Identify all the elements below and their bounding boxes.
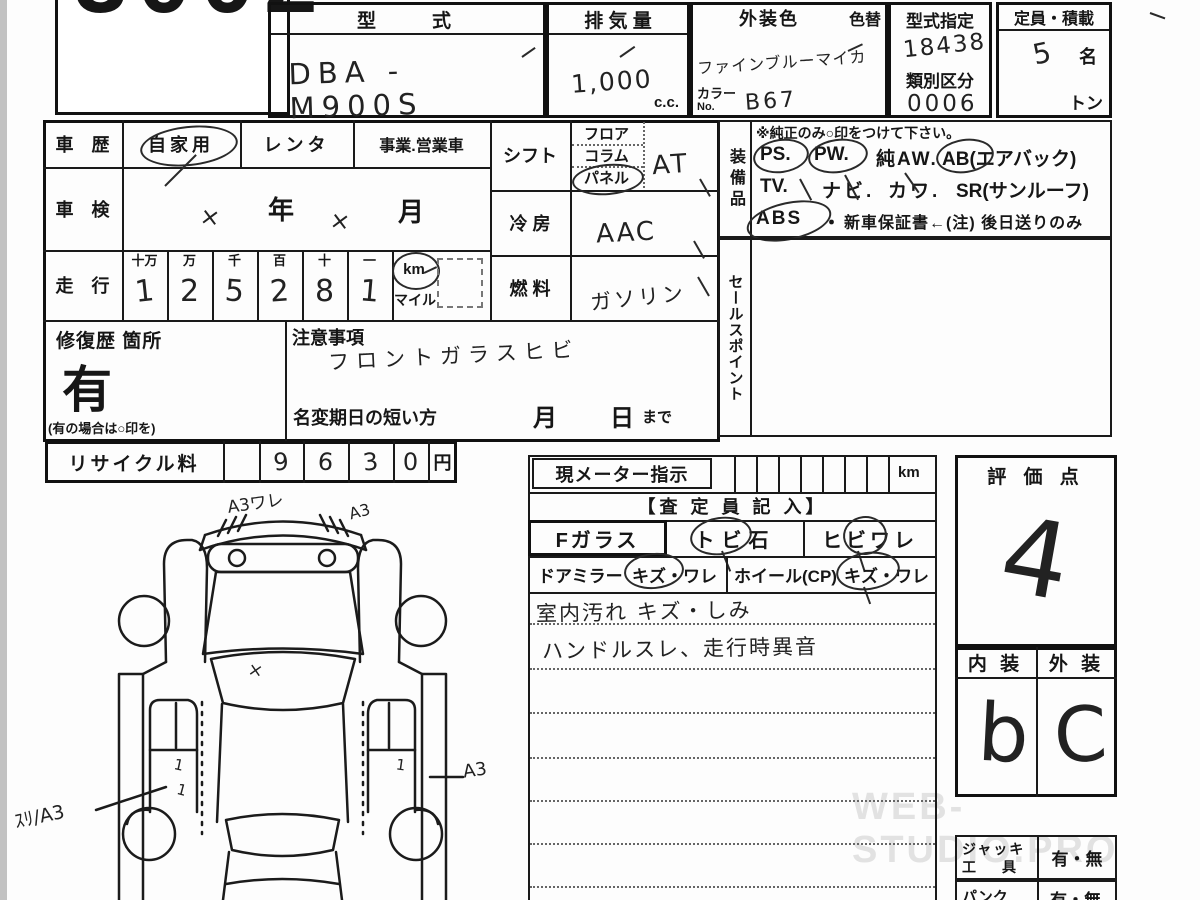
history-business: 事業.営業車 — [353, 120, 490, 167]
meter-label: 現メーター指示 — [532, 458, 712, 489]
mileage-label: 走 行 — [43, 250, 122, 320]
windshield — [211, 652, 355, 710]
assessor-note-2: ハンドルスレ、走行時異音 — [542, 631, 818, 666]
recycle-unit: 円 — [428, 441, 457, 483]
grid-line — [888, 455, 890, 492]
capacity-cell: 定員・積載 5 名 トン — [996, 2, 1112, 118]
lot-number: 3002 — [74, 0, 274, 35]
mileage-d10k: 2 — [167, 266, 212, 316]
grid-line — [844, 455, 846, 492]
car-damage-diagram — [30, 488, 510, 900]
equipment-leather: カワ. — [888, 176, 940, 203]
score-value: 4 — [992, 493, 1079, 625]
jack-value: 有・無 — [1037, 835, 1117, 880]
inspection-year-mark: × — [198, 202, 222, 233]
grid-line — [726, 556, 728, 592]
left-door — [150, 700, 197, 812]
ruled-line — [530, 800, 935, 802]
ruled-line — [530, 757, 935, 759]
capacity-label: 定員・積載 — [999, 5, 1109, 31]
roof-sides — [217, 704, 348, 822]
recycle-d3: 3 — [346, 441, 395, 483]
displacement-unit: c.c. — [654, 94, 679, 111]
shift-floor: フロア — [570, 122, 643, 144]
jack-label-1: ジャッキ — [962, 839, 1025, 859]
displacement-value: 1,000 — [570, 64, 653, 99]
rename-label: 名変期日の短い方 — [293, 404, 437, 430]
exterior-grade: C — [1052, 689, 1110, 781]
history-rental: レンタ — [240, 120, 353, 167]
inspection-month: 月 — [398, 192, 424, 229]
recycle-d4: 0 — [393, 443, 428, 481]
right-door-window — [368, 703, 415, 750]
mileage-d100k: 1 — [120, 264, 170, 318]
model-code-label: 型 式 — [271, 5, 543, 35]
sales-point-strip: セールスポイント — [718, 238, 752, 437]
exterior-label: 外 装 — [1036, 649, 1117, 675]
grid-line — [756, 455, 758, 492]
score-label: 評 価 点 — [958, 462, 1114, 488]
grid-line — [800, 455, 802, 492]
grid-line — [285, 320, 287, 442]
lot-number-box: 3002 — [55, 0, 290, 115]
sales-point-label: セールスポイント — [725, 274, 746, 402]
capacity-value: 5 — [1030, 36, 1054, 72]
trunk-lid — [226, 879, 339, 884]
fuel-label: 燃 料 — [490, 255, 570, 320]
washer-nozzle — [229, 550, 245, 566]
puncture-label: パンク — [962, 886, 1008, 900]
wheel-label: ホイール(CP) — [734, 562, 837, 587]
hood — [203, 572, 363, 654]
displacement-label: 排 気 量 — [549, 5, 687, 35]
meter-unit: km — [898, 464, 920, 481]
grid-line — [955, 677, 1117, 679]
front-glass-label: Fガラス — [528, 520, 667, 556]
displacement-cell: 排 気 量 1,000 c.c. — [546, 2, 690, 118]
right-rocker-panel — [422, 674, 446, 900]
rear-window — [226, 814, 339, 856]
model-code-value: DBA - M900S — [288, 49, 544, 126]
grid-line — [822, 455, 824, 492]
mileage-d1k: 5 — [210, 264, 258, 317]
grid-line — [43, 320, 720, 322]
mileage-d10: 8 — [302, 266, 347, 316]
ruled-line — [530, 623, 935, 625]
recycle-d1: 9 — [257, 441, 304, 483]
inspection-year: 年 — [268, 190, 294, 227]
rename-month: 月 — [533, 398, 557, 433]
inspection-month-mark: × — [328, 206, 352, 237]
exterior-color-label: 外装色 — [693, 5, 845, 31]
grid-line — [223, 441, 225, 483]
score-box: 評 価 点 4 — [955, 455, 1117, 647]
ruled-line — [530, 712, 935, 714]
equipment-aw: 純AW. — [876, 144, 938, 171]
left-front-fender — [164, 540, 207, 662]
puncture-value: 有・無 — [1050, 886, 1101, 900]
right-door — [368, 700, 415, 812]
ruled-line — [530, 843, 935, 845]
mileage-d1: 1 — [345, 264, 394, 318]
scan-edge-left — [0, 0, 7, 900]
history-label: 車 歴 — [43, 120, 122, 167]
equipment-label-strip: 装備品 — [718, 120, 752, 238]
equipment-warranty: 新車保証書←(注) 後日送りのみ — [844, 209, 1083, 233]
left-door-window — [150, 703, 197, 750]
ruled-line — [530, 886, 935, 888]
sales-point-box — [750, 238, 1112, 437]
interior-label: 内 装 — [955, 649, 1036, 675]
classification-label: 類別区分 — [891, 67, 989, 91]
left-front-wheel — [119, 596, 169, 646]
auction-sheet: WEB-STUDIO.PRO 3002 型 式 DBA - M900S 排 気 … — [0, 0, 1200, 900]
mileage-d100: 2 — [255, 264, 303, 317]
mile-box — [437, 258, 483, 308]
equipment-tv: TV. — [760, 176, 788, 198]
color-no-label: カラー — [697, 87, 736, 100]
diagram-right-note: A3 — [462, 758, 488, 782]
panel-connector — [143, 662, 422, 674]
mileage-h10: 十 — [302, 252, 347, 267]
color-no-sub: No. — [697, 101, 715, 113]
rename-until: まで — [642, 406, 672, 427]
recycle-d2: 6 — [301, 441, 349, 483]
equipment-label: 装備品 — [723, 148, 747, 211]
exterior-color-cell: 外装色 色替 ファインブルーマイカ カラー No. B67 — [690, 2, 888, 118]
right-front-fender — [358, 540, 401, 662]
wheel-arch — [127, 810, 438, 824]
color-change-label: 色替 — [845, 5, 885, 31]
right-front-wheel — [396, 596, 446, 646]
scan-mark — [1150, 12, 1166, 19]
inspection-label: 車 検 — [43, 167, 122, 250]
mileage-h10k: 万 — [167, 252, 212, 267]
jack-label-2: 工 具 — [962, 857, 1022, 877]
rename-day: 日 — [610, 398, 634, 433]
type-designation-cell: 型式指定 18438 類別区分 0006 — [888, 2, 992, 118]
leader-line — [96, 787, 166, 810]
mileage-unit-km: km — [396, 257, 432, 281]
capacity-unit: 名 — [1079, 43, 1097, 69]
shift-column: コラム — [570, 144, 643, 166]
classification-value: 0006 — [907, 91, 978, 117]
trunk-sides — [223, 852, 342, 900]
equipment-sr: SR(サンルーフ) — [956, 176, 1089, 203]
model-code-cell: 型 式 DBA - M900S — [268, 2, 546, 118]
repair-value: 有 — [62, 350, 112, 422]
shift-label: シフト — [490, 120, 570, 190]
washer-nozzle — [319, 550, 335, 566]
aircon-value: AAC — [595, 216, 656, 249]
repair-label: 修復歴 箇所 — [56, 326, 162, 353]
type-designation-value: 18438 — [902, 29, 987, 64]
grid-line — [866, 455, 868, 492]
ruled-line — [530, 668, 935, 670]
type-designation-label: 型式指定 — [891, 7, 989, 31]
aircon-label: 冷 房 — [490, 190, 570, 255]
repair-note: (有の場合は○印を) — [48, 418, 156, 437]
mileage-unit-mile: マイル — [394, 290, 436, 310]
door-mirror-label: ドアミラー — [538, 562, 623, 587]
recycle-fee-label: リサイクル料 — [45, 441, 223, 483]
grid-line — [778, 455, 780, 492]
interior-grade: b — [976, 686, 1032, 782]
grid-line — [734, 455, 736, 492]
exterior-color-value: ファインブルーマイカ — [696, 43, 867, 79]
left-rocker-panel — [119, 674, 143, 900]
assessor-title: 【査 定 員 記 入】 — [528, 492, 937, 520]
load-unit: トン — [1069, 89, 1103, 114]
shift-value: AT — [651, 149, 691, 182]
color-no-value: B67 — [744, 87, 798, 116]
